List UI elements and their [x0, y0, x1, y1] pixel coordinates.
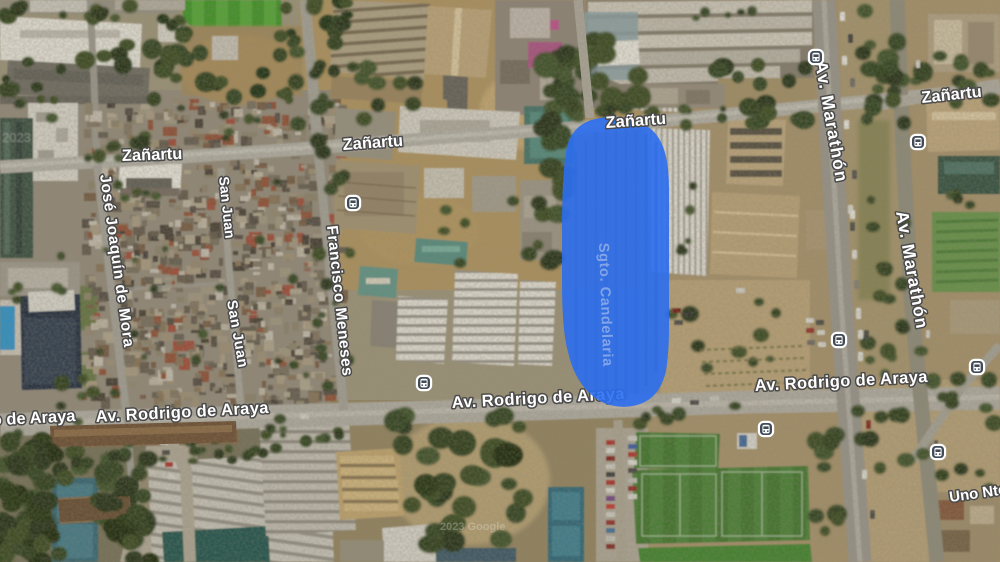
svg-text:2023 Google: 2023 Google — [440, 521, 505, 533]
svg-text:Zañartu: Zañartu — [122, 145, 183, 165]
